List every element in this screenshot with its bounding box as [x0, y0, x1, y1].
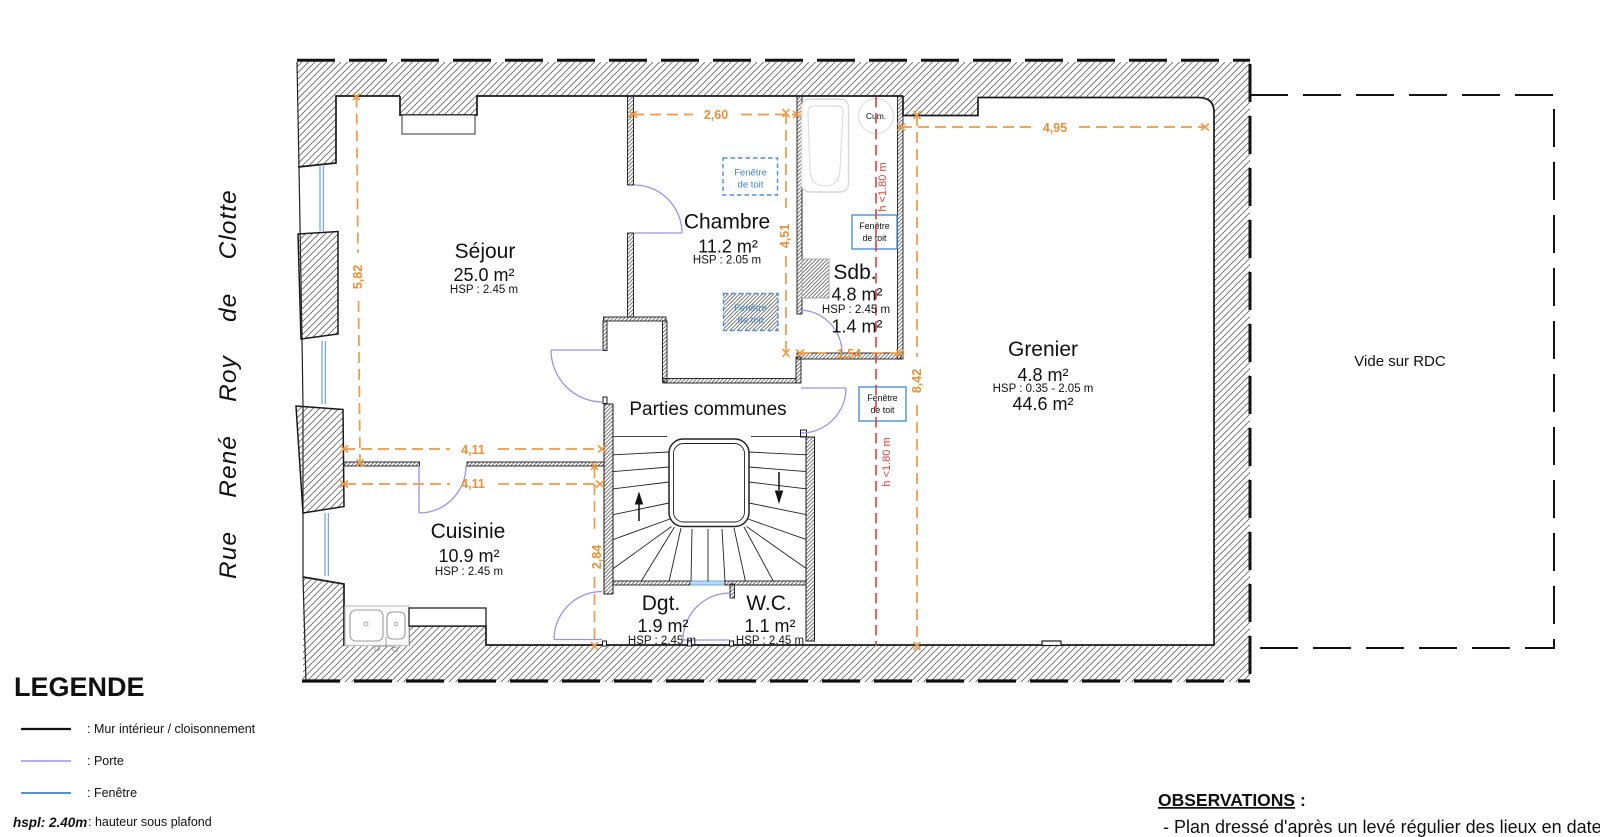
svg-text:de toit: de toit [863, 233, 888, 243]
svg-text:de toit: de toit [871, 405, 896, 415]
svg-text:Vide sur RDC: Vide sur RDC [1354, 353, 1446, 370]
svg-text:Rue René Roy de Clotte: Rue René Roy de Clotte [215, 189, 242, 579]
svg-text:1.9 m²: 1.9 m² [637, 616, 688, 636]
svg-text:LEGENDE: LEGENDE [14, 672, 145, 702]
svg-text:25.0 m²: 25.0 m² [453, 265, 514, 285]
svg-text:de toit: de toit [738, 180, 764, 191]
svg-text:HSP : 2.45 m: HSP : 2.45 m [435, 566, 503, 578]
svg-text:4,11: 4,11 [461, 477, 485, 491]
svg-text:4,51: 4,51 [778, 224, 792, 248]
svg-text:Chambre: Chambre [684, 211, 770, 234]
svg-text:: Mur intérieur / cloisonnemen: : Mur intérieur / cloisonnement [87, 722, 256, 736]
svg-text:: Porte: : Porte [87, 754, 124, 768]
svg-text:44.6 m²: 44.6 m² [1012, 394, 1073, 414]
svg-text:Fenêtre: Fenêtre [734, 168, 767, 179]
svg-text:4,95: 4,95 [1043, 121, 1067, 135]
svg-text:HSP : 2.45 m: HSP : 2.45 m [822, 304, 890, 316]
svg-text:8,42: 8,42 [910, 369, 924, 393]
svg-text:4,11: 4,11 [461, 443, 485, 457]
svg-text:1,54: 1,54 [837, 347, 861, 361]
svg-text:h <1.80 m: h <1.80 m [881, 437, 893, 486]
svg-text:de toit: de toit [738, 315, 764, 326]
svg-text:5,82: 5,82 [351, 265, 365, 289]
svg-text:- Plan dressé d'après un levé: - Plan dressé d'après un levé régulier d… [1163, 817, 1600, 837]
svg-text:1.1 m²: 1.1 m² [744, 616, 795, 636]
svg-text:Sdb.: Sdb. [833, 261, 876, 284]
svg-text:4.8 m²: 4.8 m² [831, 285, 882, 305]
svg-text:hspl: 2.40m: hspl: 2.40m [13, 815, 87, 830]
svg-text:Dgt.: Dgt. [642, 592, 681, 615]
svg-text:2,60: 2,60 [704, 108, 728, 122]
svg-text:HSP : 2.45 m: HSP : 2.45 m [736, 635, 804, 647]
svg-text:Parties communes: Parties communes [629, 399, 786, 420]
svg-text:Fenêtre: Fenêtre [734, 303, 767, 314]
svg-text:h <1.80 m: h <1.80 m [877, 162, 889, 211]
svg-text:Cuisinie: Cuisinie [431, 520, 506, 543]
svg-text:2,84: 2,84 [590, 545, 604, 569]
svg-text:Fenêtre: Fenêtre [867, 393, 897, 403]
svg-text:Séjour: Séjour [455, 240, 516, 263]
svg-text:10.9 m²: 10.9 m² [438, 546, 499, 566]
svg-text:4.8 m²: 4.8 m² [1017, 365, 1068, 385]
svg-text:W.C.: W.C. [746, 592, 792, 615]
svg-text:HSP : 2.45 m: HSP : 2.45 m [628, 635, 696, 647]
svg-text:: Fenêtre: : Fenêtre [87, 786, 137, 800]
svg-text:HSP : 2.05 m: HSP : 2.05 m [693, 255, 761, 267]
svg-text:Grenier: Grenier [1008, 338, 1078, 361]
svg-text:OBSERVATIONS :: OBSERVATIONS : [1158, 790, 1306, 810]
svg-text:: hauteur sous plafond: : hauteur sous plafond [88, 815, 212, 829]
svg-text:11.2 m²: 11.2 m² [698, 237, 758, 257]
svg-text:HSP : 2.45 m: HSP : 2.45 m [450, 284, 518, 296]
svg-text:1.4 m²: 1.4 m² [831, 317, 882, 337]
svg-text:Fenêtre: Fenêtre [859, 221, 889, 231]
